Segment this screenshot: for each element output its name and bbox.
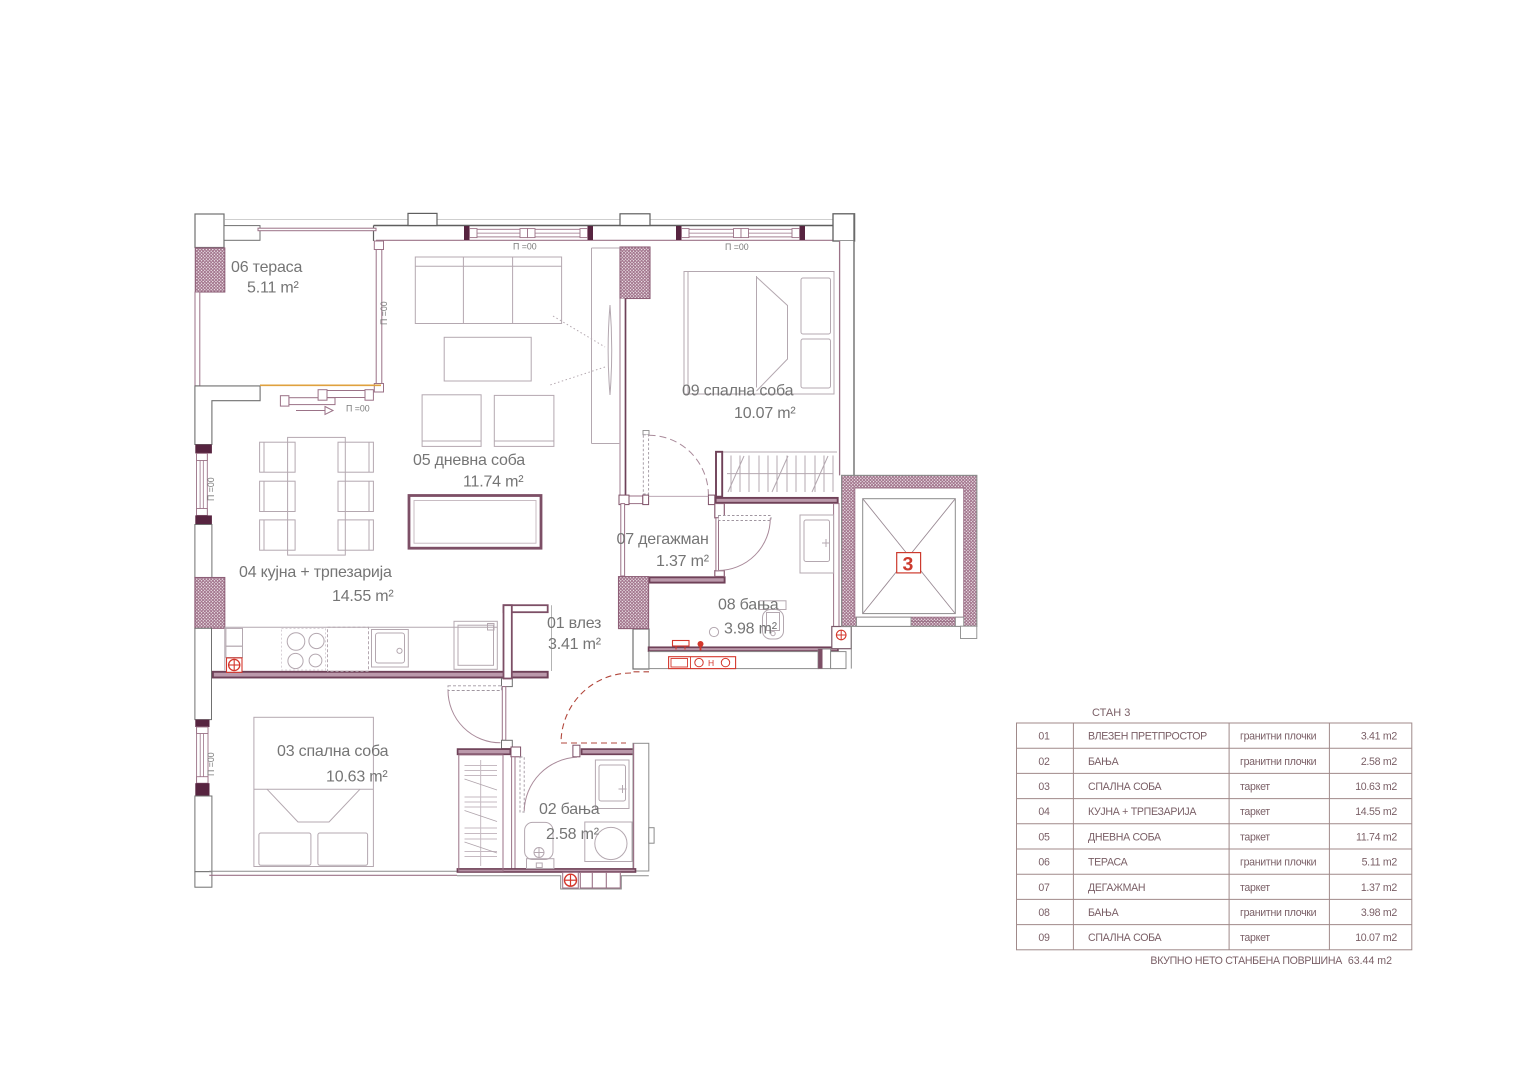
svg-text:3.98 m²: 3.98 m² bbox=[724, 621, 778, 638]
svg-text:БАЊА: БАЊА bbox=[1088, 756, 1120, 768]
svg-text:5.11 m2: 5.11 m2 bbox=[1362, 857, 1398, 869]
svg-text:01 влез: 01 влез bbox=[547, 615, 601, 632]
svg-text:H: H bbox=[708, 658, 714, 668]
svg-text:1.37 m²: 1.37 m² bbox=[656, 553, 710, 570]
svg-text:гранитни плочки: гранитни плочки bbox=[1240, 907, 1317, 919]
svg-text:гранитни плочки: гранитни плочки bbox=[1240, 857, 1317, 869]
svg-text:СПАЛНА СОБА: СПАЛНА СОБА bbox=[1088, 932, 1163, 944]
svg-text:11.74 m2: 11.74 m2 bbox=[1356, 831, 1397, 843]
svg-text:1.37 m2: 1.37 m2 bbox=[1361, 882, 1398, 894]
svg-text:гранитни плочки: гранитни плочки bbox=[1240, 756, 1317, 768]
svg-text:10.07 m²: 10.07 m² bbox=[734, 405, 796, 422]
svg-text:П =00: П =00 bbox=[513, 242, 537, 252]
svg-text:П =00: П =00 bbox=[346, 404, 370, 414]
svg-text:БАЊА: БАЊА bbox=[1088, 907, 1120, 919]
svg-text:08: 08 bbox=[1038, 907, 1050, 919]
svg-text:05 дневна соба: 05 дневна соба bbox=[413, 452, 525, 469]
svg-text:02 бања: 02 бања bbox=[539, 801, 600, 818]
svg-text:06 тераса: 06 тераса bbox=[231, 259, 302, 276]
svg-text:таркет: таркет bbox=[1240, 932, 1270, 944]
svg-text:таркет: таркет bbox=[1240, 806, 1270, 818]
svg-text:5.11 m²: 5.11 m² bbox=[247, 280, 300, 297]
svg-text:03 спална соба: 03 спална соба bbox=[277, 743, 389, 760]
svg-text:3.41 m2: 3.41 m2 bbox=[1361, 731, 1398, 743]
svg-text:КУЈНА + ТРПЕЗАРИЈА: КУЈНА + ТРПЕЗАРИЈА bbox=[1088, 806, 1197, 818]
svg-text:таркет: таркет bbox=[1240, 831, 1270, 843]
svg-text:3: 3 bbox=[903, 554, 914, 576]
svg-text:П =00: П =00 bbox=[379, 301, 389, 325]
svg-text:СТАН 3: СТАН 3 bbox=[1092, 707, 1130, 719]
svg-text:СПАЛНА СОБА: СПАЛНА СОБА bbox=[1088, 781, 1163, 793]
svg-text:ТЕРАСА: ТЕРАСА bbox=[1088, 857, 1129, 869]
svg-text:гранитни плочки: гранитни плочки bbox=[1240, 731, 1317, 743]
svg-text:П =00: П =00 bbox=[206, 477, 216, 501]
svg-text:ДНЕВНА СОБА: ДНЕВНА СОБА bbox=[1088, 831, 1162, 843]
svg-text:П =00: П =00 bbox=[206, 752, 216, 776]
svg-text:2.58 m2: 2.58 m2 bbox=[1361, 756, 1398, 768]
svg-text:П =00: П =00 bbox=[725, 242, 749, 252]
svg-text:07: 07 bbox=[1038, 882, 1050, 894]
svg-text:3.41 m²: 3.41 m² bbox=[548, 636, 602, 653]
svg-text:03: 03 bbox=[1038, 781, 1050, 793]
svg-text:01: 01 bbox=[1038, 731, 1050, 743]
svg-text:05: 05 bbox=[1038, 831, 1050, 843]
svg-text:10.07 m2: 10.07 m2 bbox=[1355, 932, 1397, 944]
svg-text:06: 06 bbox=[1038, 857, 1050, 869]
svg-text:04: 04 bbox=[1038, 806, 1050, 818]
svg-text:63.44 m2: 63.44 m2 bbox=[1348, 955, 1392, 967]
svg-text:3.98 m2: 3.98 m2 bbox=[1361, 907, 1398, 919]
svg-text:07 дегажман: 07 дегажман bbox=[617, 531, 709, 548]
svg-text:2.58 m²: 2.58 m² bbox=[546, 826, 600, 843]
svg-text:02: 02 bbox=[1038, 756, 1050, 768]
svg-text:11.74 m²: 11.74 m² bbox=[463, 474, 524, 491]
svg-text:ВКУПНО НЕТО СТАНБЕНА ПОВРШИНА: ВКУПНО НЕТО СТАНБЕНА ПОВРШИНА bbox=[1150, 955, 1343, 967]
svg-text:таркет: таркет bbox=[1240, 781, 1270, 793]
svg-text:08 бања: 08 бања bbox=[718, 597, 779, 614]
svg-text:ВЛЕЗЕН ПРЕТПРОСТОР: ВЛЕЗЕН ПРЕТПРОСТОР bbox=[1088, 731, 1207, 743]
svg-text:ДЕГАЖМАН: ДЕГАЖМАН bbox=[1088, 882, 1145, 894]
svg-text:09: 09 bbox=[1038, 932, 1050, 944]
svg-text:09 спална соба: 09 спална соба bbox=[682, 383, 794, 400]
svg-text:14.55 m2: 14.55 m2 bbox=[1355, 806, 1397, 818]
svg-text:10.63 m2: 10.63 m2 bbox=[1355, 781, 1397, 793]
svg-text:04 кујна + трпезарија: 04 кујна + трпезарија bbox=[239, 564, 392, 581]
svg-text:14.55 m²: 14.55 m² bbox=[332, 588, 394, 605]
svg-text:10.63 m²: 10.63 m² bbox=[326, 769, 388, 786]
svg-text:таркет: таркет bbox=[1240, 882, 1270, 894]
